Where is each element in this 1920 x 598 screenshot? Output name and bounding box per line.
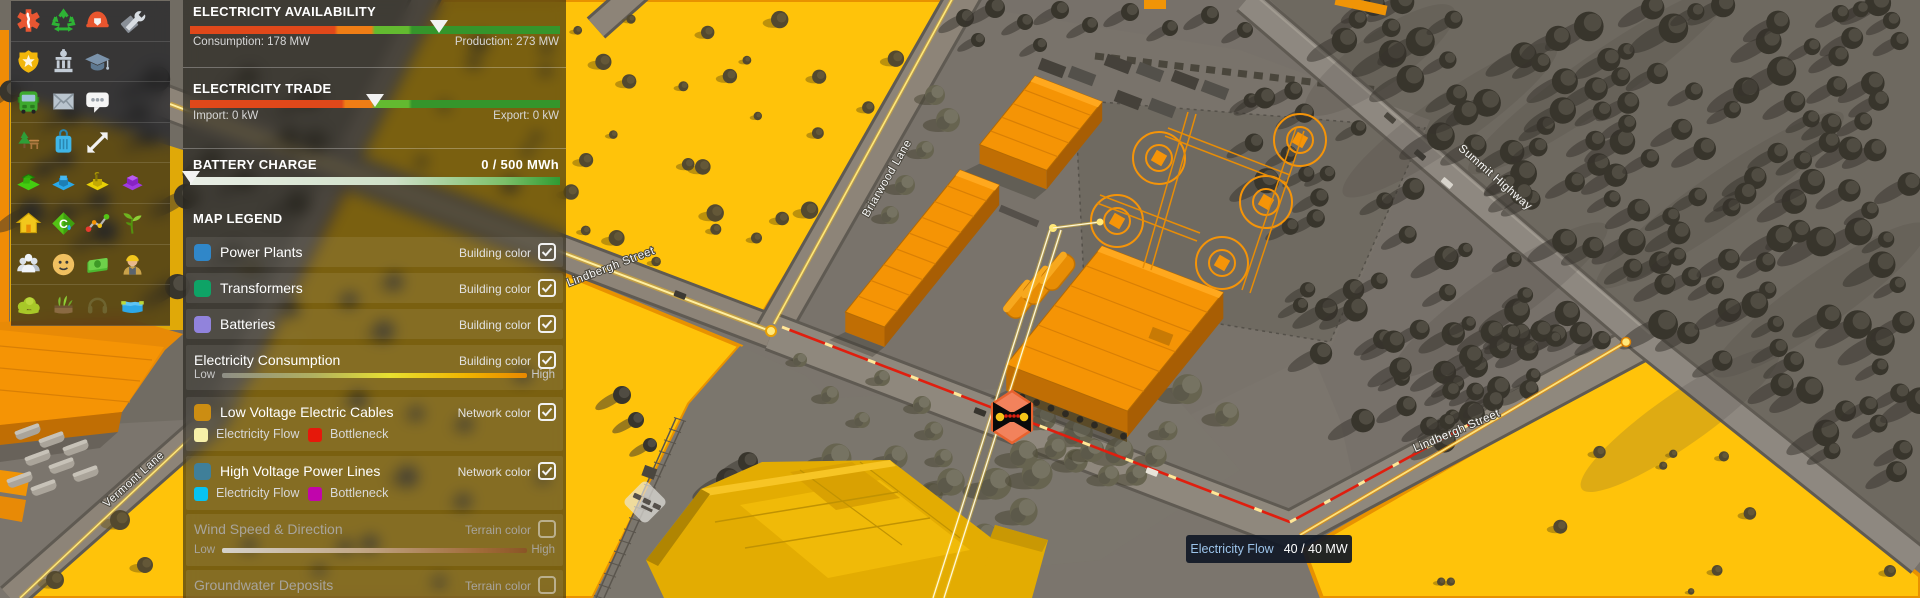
svg-text:C: C <box>59 217 68 231</box>
